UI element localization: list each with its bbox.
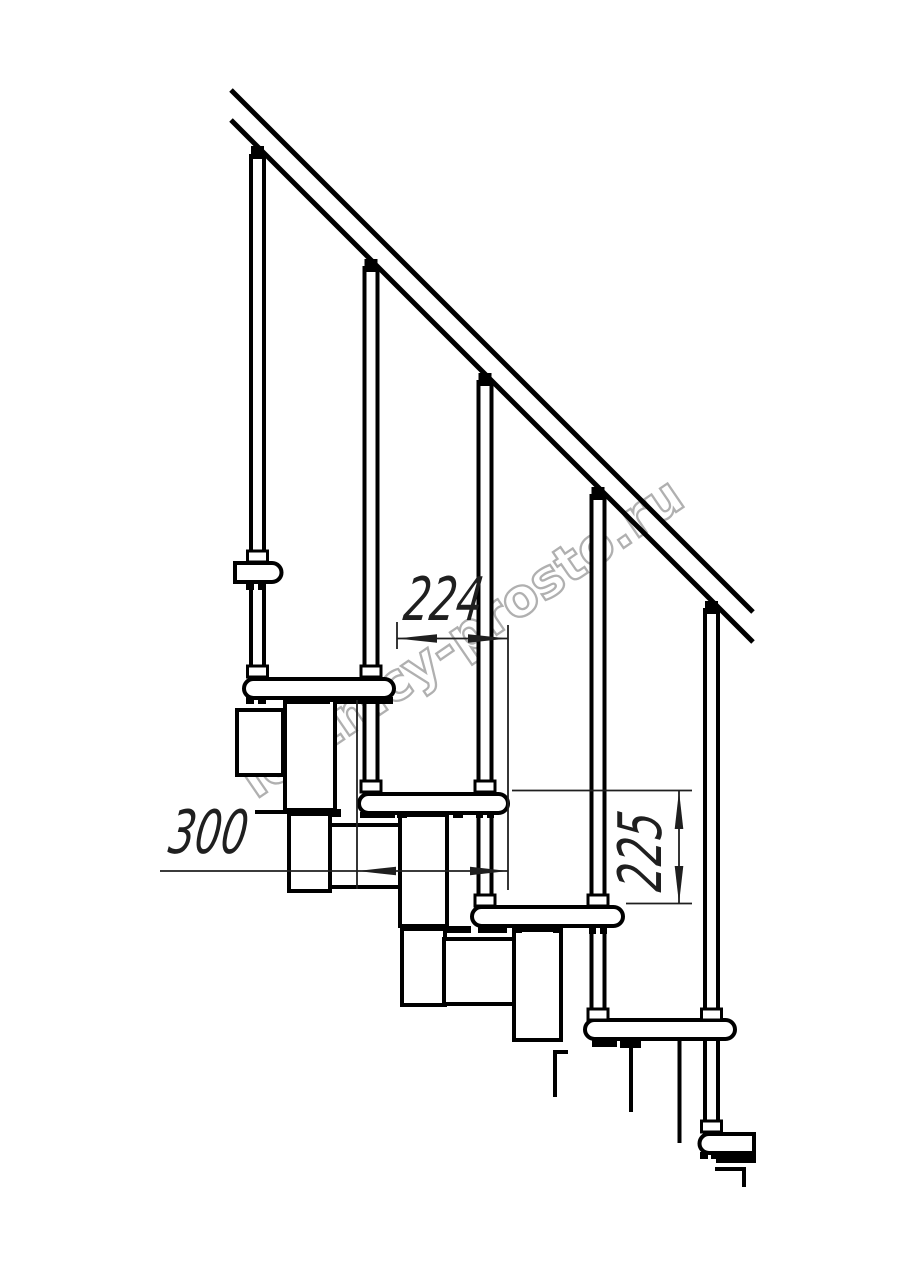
seam: [478, 926, 507, 933]
foot: [258, 697, 266, 704]
tread-5: [585, 1020, 735, 1039]
collar: [588, 1009, 608, 1020]
collar: [475, 895, 495, 906]
baluster-2: [365, 268, 378, 794]
collar: [248, 666, 268, 677]
module-3-lower-box: [402, 929, 445, 1005]
collar: [702, 1121, 722, 1132]
foot: [258, 583, 266, 590]
module-under-tread-5-partial: [553, 1041, 680, 1143]
foot: [512, 927, 522, 933]
collar: [361, 666, 381, 677]
seam: [360, 812, 395, 818]
seam: [334, 697, 393, 704]
foot: [553, 927, 563, 933]
dimension-label-rise: 225: [611, 808, 671, 894]
foot: [700, 1152, 708, 1159]
foot: [487, 812, 494, 818]
collar: [702, 1009, 722, 1020]
seam: [286, 697, 330, 704]
staircase-drawing-canvas: lestnicy-prosto.ru: [0, 0, 914, 1280]
module-under-tread-3: [330, 815, 447, 1005]
collar: [248, 551, 268, 562]
floor-step-outline: [715, 1169, 746, 1187]
foot: [600, 927, 607, 934]
baluster-3: [479, 382, 492, 907]
foot: [246, 697, 254, 704]
seam: [592, 1040, 617, 1047]
tread-6-bottom-bracket: [700, 1134, 755, 1153]
tread-2: [244, 679, 394, 698]
tread-1-top-bracket: [235, 563, 282, 582]
module-under-tread-2: [237, 700, 335, 891]
module-4-tube: [514, 930, 561, 1040]
arrowhead-left: [397, 634, 437, 643]
tread-4: [472, 907, 623, 926]
seam: [716, 1154, 756, 1163]
module-3-left-box: [330, 825, 403, 887]
foot: [453, 812, 463, 818]
collar: [361, 781, 381, 792]
module-4-left-box: [444, 939, 516, 1004]
seam: [620, 1040, 641, 1048]
foot: [397, 812, 407, 818]
dimension-label-depth: 300: [166, 803, 252, 863]
module-2-left-box: [237, 710, 283, 775]
baluster-5: [705, 610, 718, 1134]
foot: [476, 812, 483, 818]
joint-module-3-4: [443, 926, 471, 933]
staircase-elevation-drawing: [0, 0, 914, 1280]
collar: [588, 895, 608, 906]
module-2-tube: [285, 700, 335, 810]
foot: [589, 927, 596, 934]
baluster-4: [592, 496, 605, 1021]
tread-3: [359, 794, 508, 813]
baluster-1: [251, 156, 264, 677]
collar: [475, 781, 495, 792]
module-2-lower-box: [289, 814, 330, 891]
module-under-tread-4: [444, 930, 561, 1040]
foot: [246, 583, 254, 590]
joint-module-2-3: [328, 809, 341, 817]
dimension-label-run: 224: [401, 570, 487, 630]
